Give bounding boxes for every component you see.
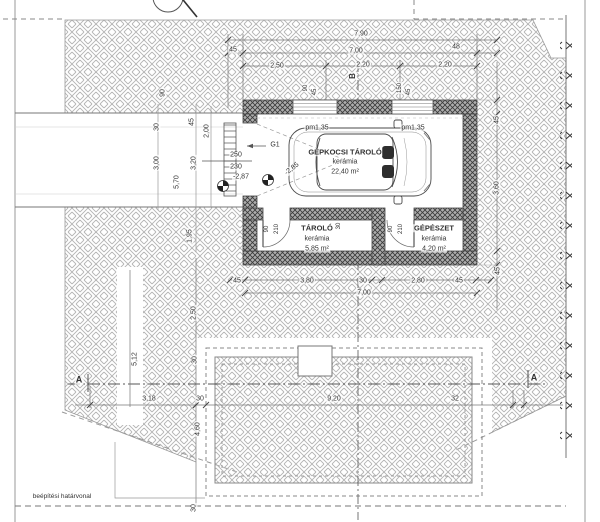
level-sill-bottom: 230 [229, 164, 243, 171]
room-garage-name: GÉPKOCSI TÁROLÓ [307, 148, 382, 156]
dim-total-width: 7,90 [353, 31, 369, 38]
grid-axis-label: B [349, 72, 357, 80]
dim-win-r-150: 150 [397, 82, 403, 94]
dim-bot-45b: 45 [454, 278, 464, 285]
room-garage-finish: kerámia [332, 159, 359, 166]
section-a-right: A [530, 374, 539, 383]
section-a-left: A [75, 376, 84, 385]
parapet-left: pm1,35 [304, 125, 329, 132]
dim-top-48: 48 [451, 44, 461, 51]
dim-right-45a: 45 [494, 115, 501, 125]
dim-site-512: 5,12 [132, 351, 139, 367]
door1-height: 210 [274, 223, 280, 235]
dim-drive-320: 3,20 [191, 155, 198, 171]
car-seat [382, 146, 394, 159]
dim-opening-220a: 2,20 [355, 62, 371, 69]
dim-opening-250: 2,50 [269, 63, 285, 70]
dim-drive-30: 30 [154, 122, 161, 132]
dim-drive-195: 1,95 [187, 228, 194, 244]
level-sill-top: 250 [229, 152, 243, 159]
fence-x-marks [560, 25, 572, 450]
north-symbol [153, 0, 183, 12]
room-mech-name: GÉPÉSZET [413, 224, 455, 232]
dim-top-700: 7,00 [348, 48, 364, 55]
room-storage-name: TÁROLÓ [300, 224, 334, 232]
room-storage-area: 5,85 m² [304, 246, 330, 253]
dim-bot-280: 2,80 [410, 278, 426, 285]
level-drive: -2,87 [232, 174, 250, 181]
door2-width: 90 [388, 225, 394, 234]
door1-width: 90 [264, 225, 270, 234]
boundary-label: beépítési határvonal [32, 494, 93, 501]
room-garage-area: 22,40 m² [330, 169, 360, 176]
house-footprint [206, 346, 482, 496]
dim-win-r-45: 45 [406, 88, 412, 97]
dim-drive-45: 45 [189, 117, 196, 127]
dim-bot-total: 7,00 [356, 290, 372, 297]
car-seat [382, 165, 394, 178]
dim-win-l-45: 45 [312, 88, 318, 97]
dim-site-250: 2,50 [191, 305, 198, 321]
dim-site-30b: 30 [191, 503, 198, 513]
dim-drive-200: 2,00 [204, 123, 211, 139]
dim-win-l-90: 90 [303, 84, 309, 93]
dim-row-920: 9,20 [326, 396, 342, 403]
floor-plan-canvas: 7,90457,00482,502,202,20B904515045903045… [0, 0, 600, 522]
plan-drawing [0, 0, 600, 522]
dim-top-45: 45 [228, 47, 238, 54]
room-mech-finish: kerámia [421, 236, 448, 243]
dim-site-460: 4,60 [195, 421, 202, 437]
dim-row-318: 3,18 [141, 396, 157, 403]
footprint-notch [298, 346, 332, 376]
level-symbol-garage [263, 175, 274, 186]
room-storage-finish: kerámia [304, 236, 331, 243]
dim-opening-220b: 2,20 [437, 62, 453, 69]
door2-height: 210 [398, 223, 404, 235]
garage-door-label: G1 [269, 142, 280, 149]
dim-bot-30: 30 [358, 278, 368, 285]
dim-right-45b: 45 [495, 266, 502, 276]
dim-site-30a: 30 [192, 355, 199, 365]
dim-row-30: 30 [195, 396, 205, 403]
dim-mid-wall: 30 [336, 222, 342, 231]
dim-drive-570: 5,70 [174, 174, 181, 190]
dim-drive-300: 3,00 [154, 155, 161, 171]
dim-right-360: 3,60 [494, 180, 501, 196]
parapet-right: pm1,35 [400, 125, 425, 132]
dim-bot-380: 3,80 [299, 278, 315, 285]
dim-bot-45a: 45 [232, 278, 242, 285]
room-mech-area: 4,20 m² [421, 246, 447, 253]
dim-row-32: 32 [450, 396, 460, 403]
dim-drive-90: 90 [160, 88, 167, 98]
level-symbol-drive [218, 181, 229, 192]
